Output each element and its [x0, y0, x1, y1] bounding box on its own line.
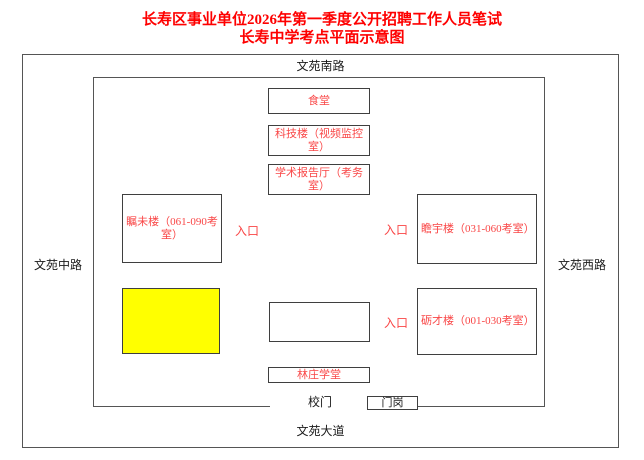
guard-post-label: 门岗	[382, 397, 404, 410]
page-title-line2: 长寿中学考点平面示意图	[0, 29, 644, 47]
entrance-marker-right-lower: 入口	[382, 317, 410, 329]
guard-post-box: 门岗	[367, 396, 418, 410]
road-label-west: 文苑中路	[23, 259, 93, 272]
building-linzhuang: 林庄学堂	[268, 367, 370, 383]
highlighted-yellow-building	[122, 288, 220, 354]
building-tech: 科技楼（视频监控室）	[268, 125, 370, 156]
school-gate-label: 校门	[285, 396, 355, 409]
campus-fence-bottom-left	[93, 406, 270, 408]
building-lecture-hall-label: 学术报告厅（考务室）	[272, 167, 366, 193]
road-label-east: 文苑西路	[546, 259, 618, 272]
building-licai: 砺才楼（001-030考室）	[417, 288, 537, 355]
road-label-north: 文苑南路	[22, 60, 619, 73]
entrance-marker-right-upper: 入口	[382, 224, 410, 236]
unlabeled-building	[269, 302, 370, 342]
building-zhanyu-label: 瞻宇楼（031-060考室）	[421, 223, 533, 236]
building-zhanyu: 瞻宇楼（031-060考室）	[417, 194, 537, 264]
campus-fence-bottom-right	[418, 406, 545, 408]
building-lecture-hall: 学术报告厅（考务室）	[268, 164, 370, 195]
exam-site-map: 长寿区事业单位2026年第一季度公开招聘工作人员笔试 长寿中学考点平面示意图 文…	[0, 0, 644, 460]
building-zhuwei-label: 瞩未楼（061-090考室）	[126, 216, 218, 242]
building-tech-label: 科技楼（视频监控室）	[272, 128, 366, 154]
building-zhuwei: 瞩未楼（061-090考室）	[122, 194, 222, 263]
building-canteen-label: 食堂	[308, 95, 330, 108]
building-canteen: 食堂	[268, 88, 370, 114]
page-title-line1: 长寿区事业单位2026年第一季度公开招聘工作人员笔试	[0, 11, 644, 29]
road-label-south: 文苑大道	[22, 425, 619, 438]
entrance-marker-left: 入口	[233, 225, 261, 237]
building-linzhuang-label: 林庄学堂	[297, 369, 341, 382]
building-licai-label: 砺才楼（001-030考室）	[421, 315, 533, 328]
